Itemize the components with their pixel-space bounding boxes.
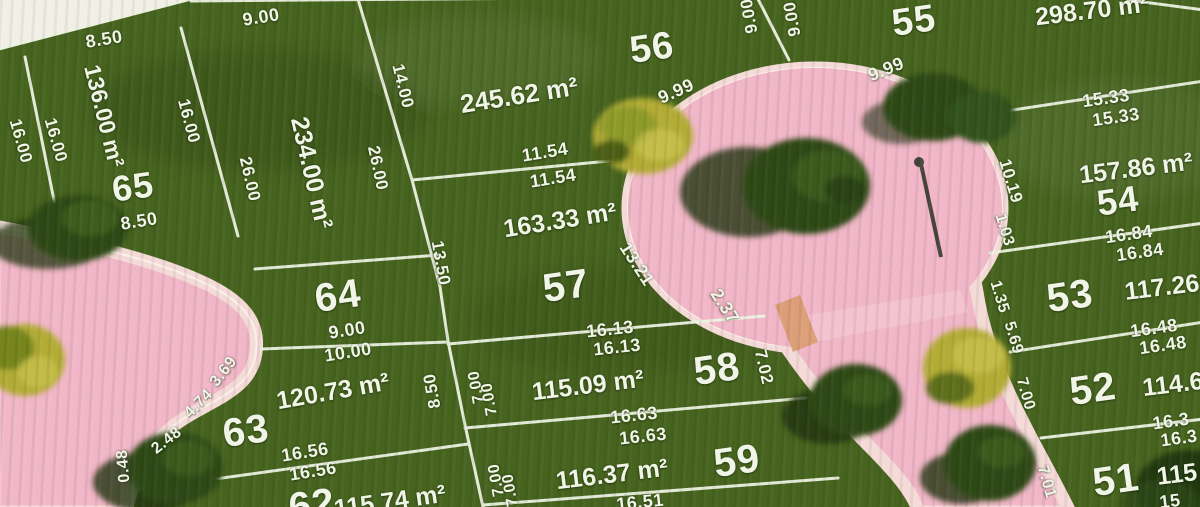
dimension-label: 9.99 (865, 54, 906, 85)
area-label: 298.70 m² (1034, 0, 1150, 30)
lot-number: 53 (1044, 273, 1096, 319)
dimension-label: 16.48 (1138, 333, 1188, 357)
dimension-label: 7.00 (479, 381, 501, 416)
lot-number: 51 (1090, 457, 1142, 503)
dimension-label: 9.00 (327, 318, 366, 342)
dimension-label: 15.33 (1091, 105, 1141, 129)
dimension-label: 16.3 (1159, 427, 1198, 450)
dimension-label: 16.13 (592, 336, 641, 359)
lot-number: 64 (312, 273, 364, 319)
dimension-label: 4.74 (182, 387, 217, 422)
dimension-label: 10.00 (323, 339, 373, 364)
dimension-label: 13.50 (429, 239, 454, 286)
dimension-label: 9.00 (241, 5, 280, 29)
area-label: 120.73 m² (275, 370, 392, 414)
subdivision-plan-map: 65646362565758595554535251136.00 m²234.0… (0, 0, 1200, 507)
area-label: 136.00 m² (80, 62, 128, 169)
area-label: 115.74 m² (333, 482, 448, 507)
lot-number: 63 (220, 408, 272, 454)
lot-number: 52 (1067, 366, 1119, 412)
dimension-label: 9.00 (738, 0, 761, 35)
dimension-label: 5.69 (1001, 320, 1026, 356)
dimension-label: 16.00 (7, 117, 36, 165)
dimension-label: 13.21 (617, 239, 658, 289)
lot-number: 62 (286, 482, 338, 507)
dimension-label: 1.03 (992, 212, 1017, 248)
area-label: 116.37 m² (555, 456, 670, 495)
dimension-label: 15 (1158, 491, 1181, 507)
dimension-label: 11.54 (529, 165, 578, 190)
dimension-label: 8.50 (421, 372, 444, 410)
area-label: 115 (1155, 460, 1198, 490)
dimension-label: 8.50 (84, 27, 123, 51)
dimension-label: 2.48 (149, 424, 185, 457)
area-label: 115.09 m² (531, 367, 646, 406)
dimension-label: 26.00 (365, 144, 391, 192)
lot-number: 58 (691, 346, 743, 392)
dimension-label: 7.00 (500, 472, 522, 507)
dimension-label: 16.63 (618, 425, 667, 448)
dimension-label: 7.00 (1013, 376, 1038, 412)
area-label: 114.6 (1141, 369, 1200, 401)
dimension-label: 9.00 (781, 0, 804, 38)
area-label: 245.62 m² (458, 73, 579, 117)
dimension-label: 16.51 (615, 491, 664, 507)
dimension-label: 0.48 (115, 449, 134, 483)
lot-number: 56 (627, 26, 676, 70)
lot-number: 65 (110, 166, 157, 208)
dimension-label: 7.01 (1034, 464, 1059, 500)
lot-number: 55 (889, 0, 938, 43)
dimension-label: 14.00 (389, 62, 416, 110)
lot-number: 59 (711, 438, 763, 484)
dimension-label: 16.00 (175, 97, 203, 145)
dimension-label: 11.54 (521, 139, 570, 164)
dimension-label: 26.00 (237, 155, 264, 203)
area-label: 157.86 m² (1078, 150, 1194, 189)
dimension-label: 16.63 (609, 404, 658, 427)
dimension-label: 8.50 (119, 209, 158, 233)
area-label: 234.00 m² (286, 115, 336, 232)
dimension-label: 2.37 (707, 286, 742, 327)
plan-labels: 65646362565758595554535251136.00 m²234.0… (0, 0, 1200, 507)
dimension-label: 1.35 (987, 279, 1012, 315)
dimension-label: 7.02 (752, 348, 776, 386)
area-label: 163.33 m² (502, 200, 618, 243)
dimension-label: 9.99 (655, 75, 696, 107)
dimension-label: 16.00 (42, 116, 71, 164)
dimension-label: 16.84 (1115, 240, 1165, 264)
dimension-label: 10.19 (996, 157, 1025, 205)
dimension-label: 3.69 (207, 354, 240, 390)
area-label: 117.26 (1123, 271, 1200, 305)
lot-number: 57 (540, 263, 592, 309)
